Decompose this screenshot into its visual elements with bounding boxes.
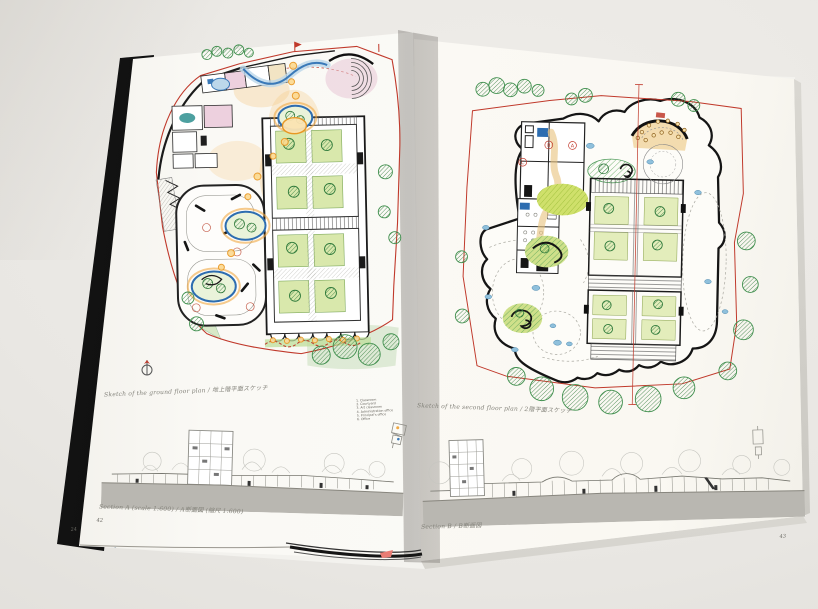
north-arrow-icon bbox=[140, 358, 154, 378]
ground-floor-plan-drawing bbox=[142, 23, 421, 379]
photo-scene: 24 bbox=[0, 0, 818, 609]
section-key-icon bbox=[753, 426, 764, 459]
section-b-drawing bbox=[421, 425, 805, 528]
bottom-curl-detail bbox=[50, 515, 430, 575]
page-number-right: 43 bbox=[779, 533, 786, 539]
section-caption-right: Section B / B断面図 bbox=[421, 520, 482, 531]
room-legend: 1. Classroom 2. Courtyard 3. Art classro… bbox=[356, 397, 393, 421]
second-floor-plan-drawing: A B C bbox=[446, 67, 769, 419]
section-a-drawing bbox=[101, 422, 405, 516]
